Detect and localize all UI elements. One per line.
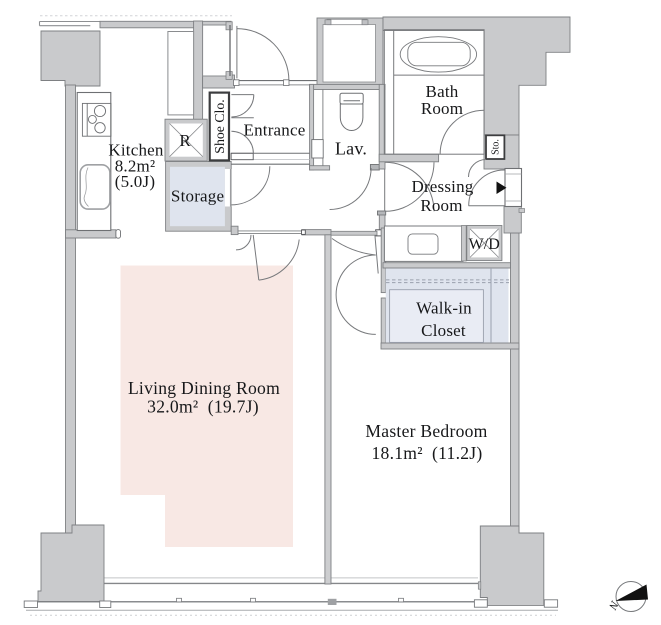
svg-text:Sto.: Sto. <box>491 139 502 155</box>
svg-text:18.1m² (11.2J): 18.1m² (11.2J) <box>372 443 483 463</box>
svg-text:Dressing: Dressing <box>411 177 473 196</box>
svg-text:Storage: Storage <box>171 186 224 205</box>
svg-text:Shoe Clo.: Shoe Clo. <box>212 99 227 153</box>
svg-text:(5.0J): (5.0J) <box>115 172 155 191</box>
svg-text:Closet: Closet <box>421 321 466 340</box>
svg-text:Lav.: Lav. <box>335 138 367 158</box>
svg-text:Walk-in: Walk-in <box>416 298 472 317</box>
svg-text:W/D: W/D <box>469 236 500 253</box>
svg-text:32.0m² (19.7J): 32.0m² (19.7J) <box>147 396 259 416</box>
svg-text:Entrance: Entrance <box>243 120 305 139</box>
svg-text:Master Bedroom: Master Bedroom <box>365 421 487 441</box>
svg-text:R: R <box>179 131 191 150</box>
svg-text:Room: Room <box>420 196 462 215</box>
svg-text:Living Dining Room: Living Dining Room <box>128 378 280 398</box>
svg-text:Room: Room <box>421 99 463 118</box>
